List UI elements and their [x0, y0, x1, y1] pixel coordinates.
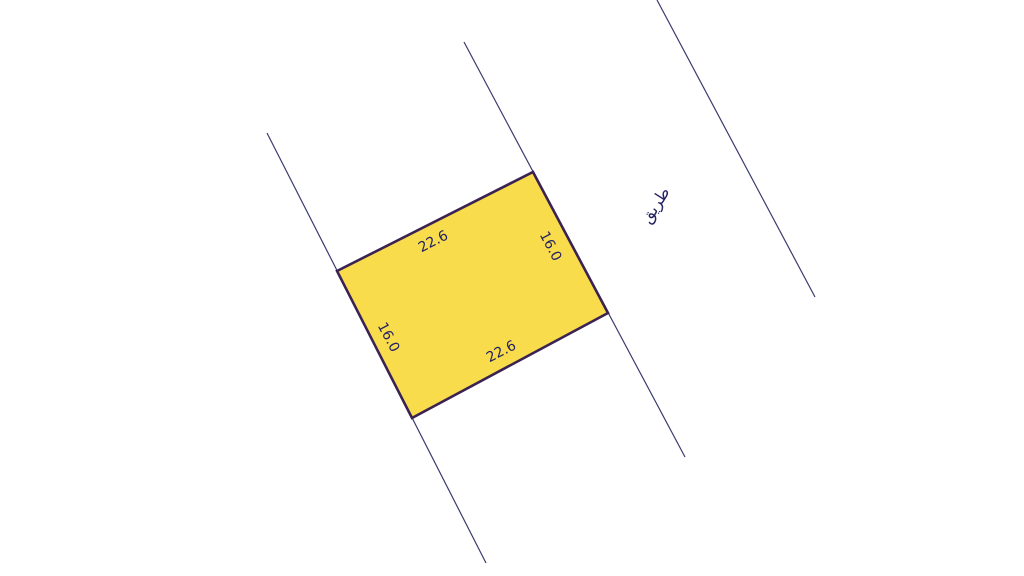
- land-parcel: [337, 172, 608, 418]
- road-label: طريق: [637, 183, 675, 227]
- road-edge-line-far: [657, 0, 815, 297]
- cadastral-plan-canvas: 22.6 16.0 22.6 16.0 طريق: [0, 0, 1024, 576]
